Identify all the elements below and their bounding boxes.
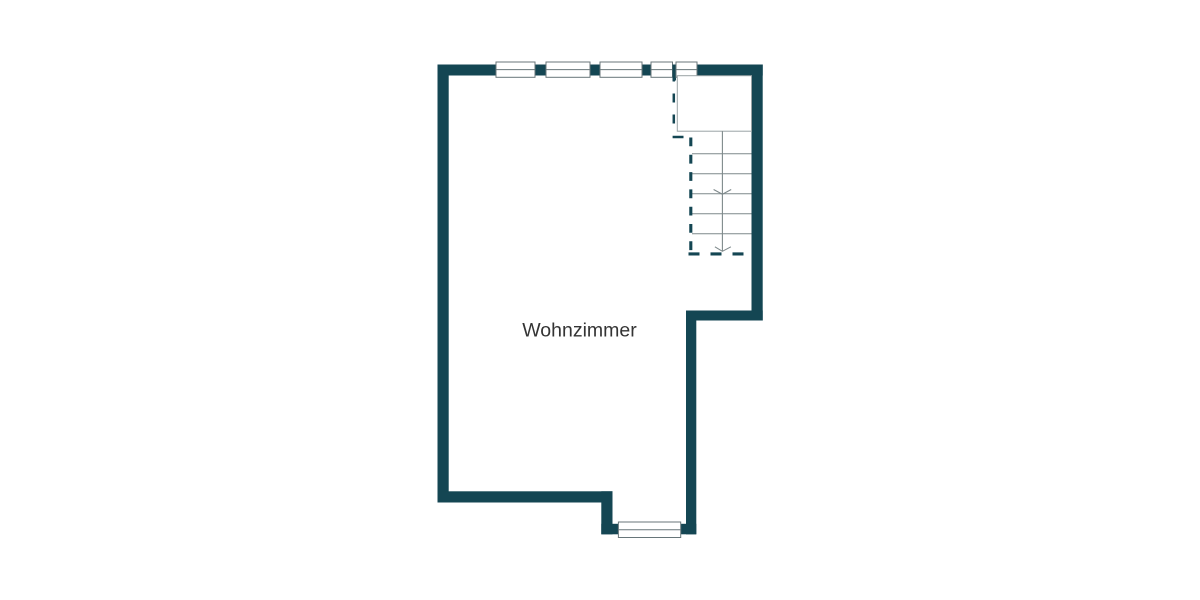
svg-text:Wohnzimmer: Wohnzimmer — [522, 320, 637, 342]
